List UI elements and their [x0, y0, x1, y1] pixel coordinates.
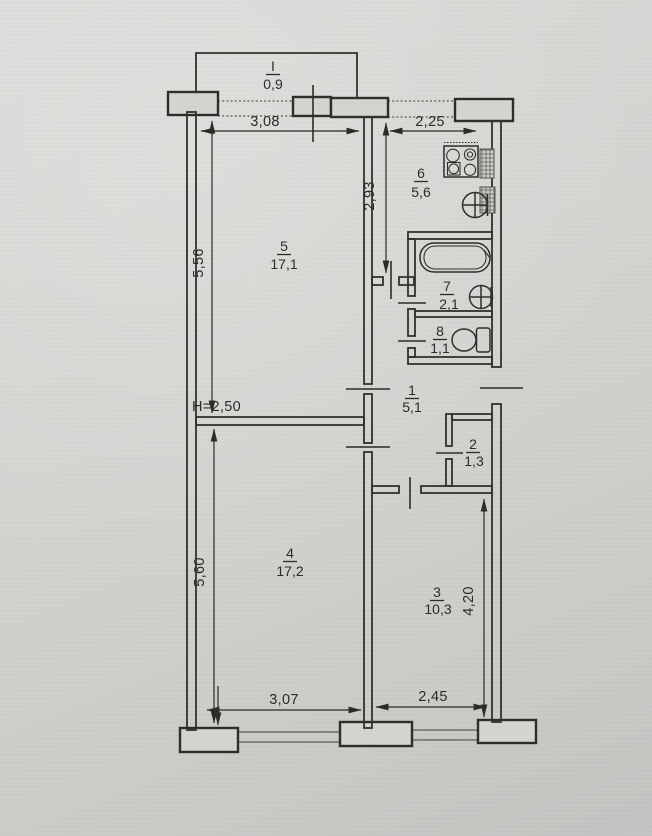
room-label-7: 7 2,1: [439, 278, 459, 312]
floor-plan-drawing: 3,08 2,25 2,93 5,56 5,60 4,20 3,07 2,45 …: [0, 0, 652, 836]
floor-plan-scan: 3,08 2,25 2,93 5,56 5,60 4,20 3,07 2,45 …: [0, 0, 652, 836]
wall-kitchen-bottom: [372, 277, 383, 285]
room1-number: 1: [408, 382, 416, 398]
balcony-number: I: [271, 58, 275, 74]
room-label-1: 1 5,1: [402, 382, 422, 415]
wall-room3-top: [421, 486, 492, 493]
room3-number: 3: [433, 584, 441, 600]
room2-area: 1,3: [464, 453, 484, 469]
room6-number: 6: [417, 165, 425, 181]
dim-left-lower: 5,60: [192, 557, 208, 586]
wall-kitchen-bottom: [399, 277, 414, 285]
room-label-4: 4 17,2: [276, 545, 303, 579]
room-labels: I 0,9 5 17,1 6 5,6 7 2,1 8 1,1 1 5,1: [263, 58, 484, 617]
wall-wc-bottom: [408, 357, 492, 364]
dim-kitchen-vertical: 2,93: [362, 181, 378, 210]
room1-area: 5,1: [402, 399, 422, 415]
dim-top-left: 3,08: [250, 114, 279, 130]
pillar: [478, 720, 536, 743]
dim-right-lower: 4,20: [461, 586, 477, 615]
pillar: [331, 98, 388, 117]
ventilation-shaft-icon: [480, 149, 494, 178]
dim-bottom-left: 3,07: [269, 692, 298, 708]
ceiling-height-note: H=2,50: [192, 399, 241, 415]
wall-bath-left: [408, 309, 415, 336]
fixtures: [420, 143, 495, 353]
room3-area: 10,3: [424, 601, 451, 617]
wall-bath-left: [408, 239, 415, 296]
wall-bath-top: [408, 232, 492, 239]
toilet-icon: [452, 328, 490, 352]
room4-area: 17,2: [276, 563, 303, 579]
pillar: [340, 722, 412, 746]
pillar: [455, 99, 513, 121]
wall-bath-left: [408, 348, 415, 357]
room-label-6: 6 5,6: [411, 165, 431, 200]
bathtub-icon: [420, 243, 490, 272]
room6-area: 5,6: [411, 184, 431, 200]
room-label-3: 3 10,3: [424, 584, 451, 617]
wall-room5-room4: [196, 417, 364, 425]
pillar: [293, 97, 331, 116]
room2-number: 2: [469, 436, 477, 452]
pillar: [180, 728, 238, 752]
room5-area: 17,1: [270, 256, 297, 272]
room-label-5: 5 17,1: [270, 238, 297, 272]
room7-number: 7: [443, 278, 451, 294]
room4-number: 4: [286, 545, 294, 561]
wall-room3-top: [372, 486, 399, 493]
room5-number: 5: [280, 238, 288, 254]
room7-area: 2,1: [439, 296, 459, 312]
room8-number: 8: [436, 323, 444, 339]
room8-area: 1,1: [430, 340, 450, 356]
stove-icon: [444, 143, 478, 178]
wall-room2-left: [446, 459, 452, 486]
wall-central-c: [364, 452, 372, 728]
wall-room2-top: [452, 414, 492, 420]
room-label-balcony: I 0,9: [263, 58, 283, 92]
wall-left: [187, 112, 196, 730]
wall-central-b: [364, 394, 372, 443]
dim-bottom-right: 2,45: [418, 689, 447, 705]
room-label-8: 8 1,1: [430, 323, 450, 356]
balcony-area: 0,9: [263, 76, 283, 92]
wall-central-a: [364, 117, 372, 384]
kitchen-sink-icon: [463, 193, 489, 218]
interior-walls: [196, 117, 492, 728]
dim-top-right: 2,25: [415, 114, 444, 130]
wall-right-lower: [492, 404, 501, 722]
dim-left-upper: 5,56: [191, 248, 207, 277]
dimension-lines: 3,08 2,25 2,93 5,56 5,60 4,20 3,07 2,45 …: [191, 114, 486, 725]
bathroom-sink-icon: [470, 286, 493, 309]
room-label-2: 2 1,3: [464, 436, 484, 469]
